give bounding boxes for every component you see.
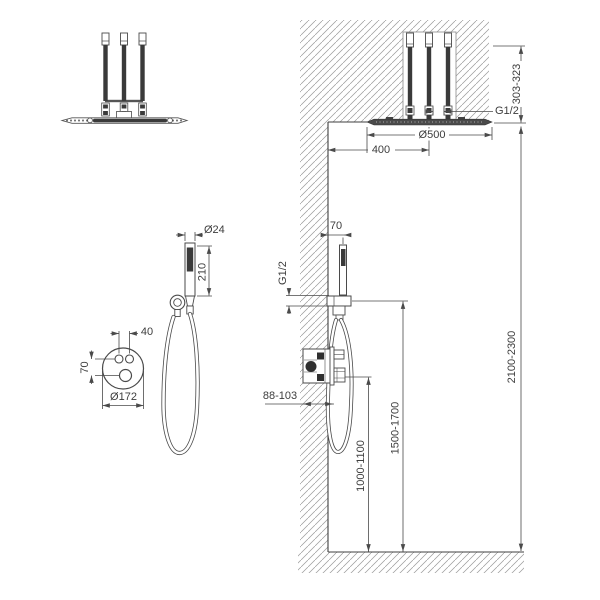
floor-hatch — [298, 552, 524, 573]
hand-shower-spray-face — [187, 248, 193, 272]
dim-handshower-offset: 70 — [330, 220, 342, 232]
dim-button-spacing: 40 — [141, 326, 153, 338]
dim-valve-height: 1000-1100 — [355, 440, 367, 492]
dim-handle-diameter: Ø24 — [204, 224, 225, 236]
ceiling-hatch — [300, 20, 489, 122]
control-plate — [103, 348, 144, 389]
dim-ceiling-connection: G1/2 — [495, 105, 519, 117]
dim-valve-depth: 88-103 — [263, 390, 297, 402]
installation-section-view: 303-323 G1/2 Ø500 400 70 G1/2 88-103 100… — [263, 20, 526, 573]
dim-holder-height: 1500-1700 — [390, 402, 402, 455]
valve-cartridge — [306, 361, 317, 372]
valve-face-plate — [330, 347, 334, 385]
dim-total-height: 2100-2300 — [506, 331, 518, 384]
technical-drawing-page: 303-323 G1/2 Ø500 400 70 G1/2 88-103 100… — [0, 0, 600, 600]
wall-hatch — [300, 122, 328, 552]
dim-head-diameter: Ø500 — [419, 129, 446, 141]
wall-bracket-ring — [170, 295, 185, 310]
dim-arm-height: 303-323 — [511, 64, 523, 104]
hose-installed — [328, 320, 352, 452]
hand-shower-product-view: Ø24 210 — [164, 224, 225, 453]
ceiling-shower-product-view — [62, 33, 187, 123]
control-plate-view: 40 70 Ø172 — [79, 326, 153, 409]
dim-wall-connection: G1/2 — [277, 261, 289, 285]
hose-product — [164, 314, 198, 453]
dim-plate-diameter: Ø172 — [110, 391, 137, 403]
hand-shower-holder — [327, 296, 351, 306]
wall-outlet-elbow — [333, 306, 345, 315]
dim-handle-length: 210 — [197, 263, 209, 281]
valve-knob — [334, 368, 345, 382]
shower-installation-drawing: 303-323 G1/2 Ø500 400 70 G1/2 88-103 100… — [0, 0, 600, 600]
dim-head-wall-offset: 400 — [372, 144, 390, 156]
concealed-valve — [303, 347, 345, 385]
dim-knob-offset: 70 — [79, 361, 91, 373]
ceiling-shower-pipes — [102, 33, 147, 116]
